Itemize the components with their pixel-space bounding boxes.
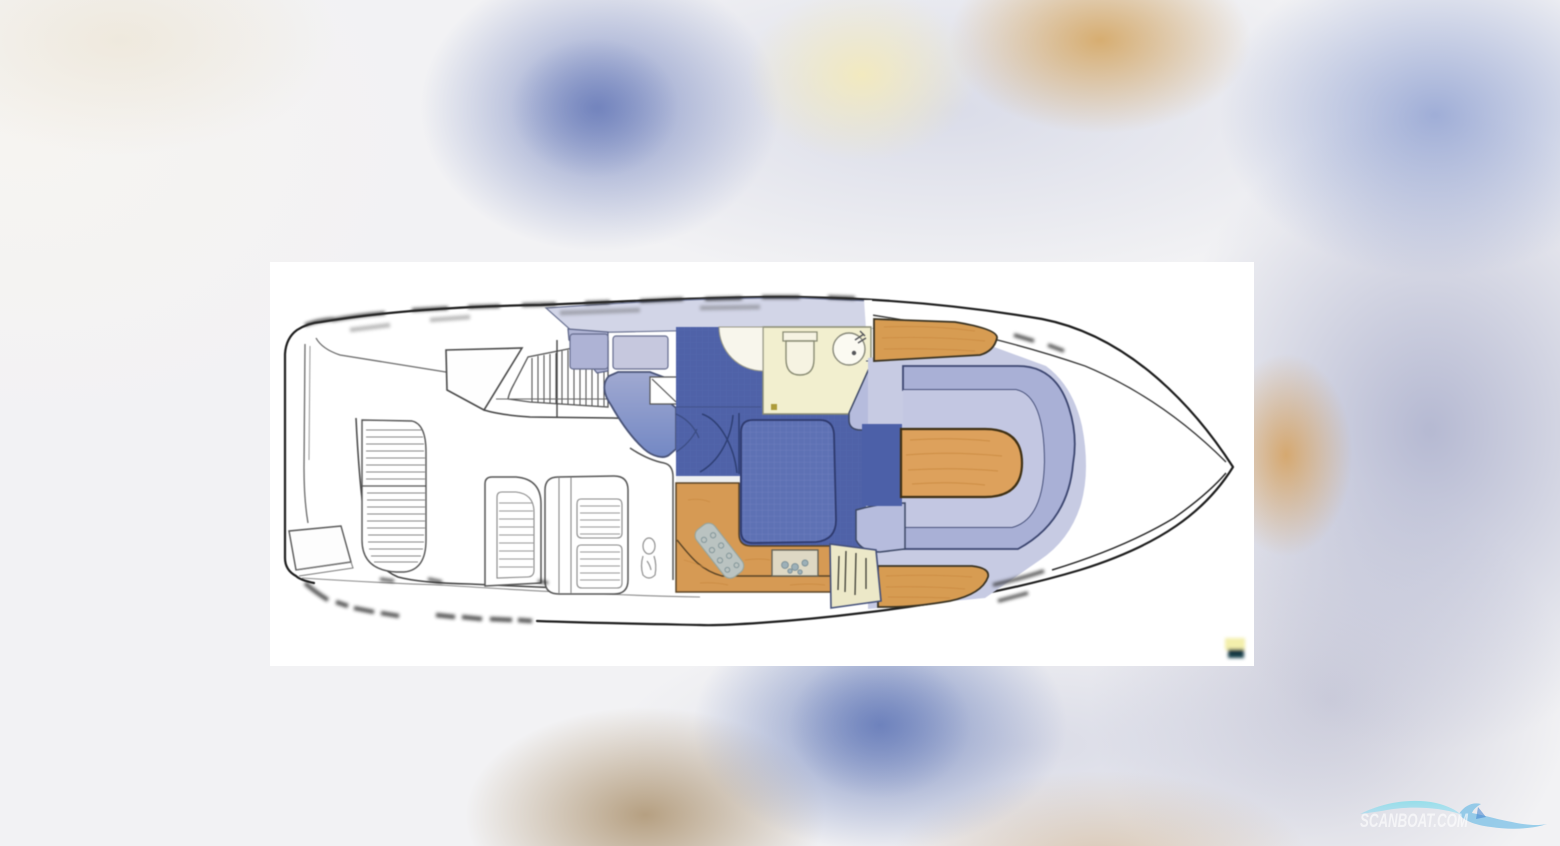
svg-text:SCANBOAT.COM: SCANBOAT.COM [1360,810,1469,832]
